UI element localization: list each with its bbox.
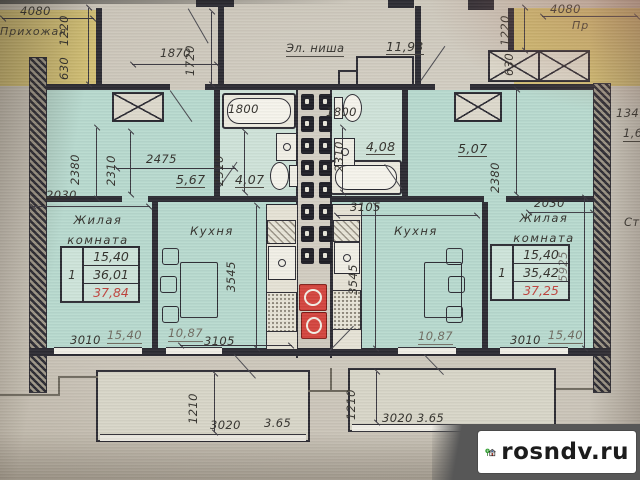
dim-3105-right: 3105 xyxy=(350,201,381,214)
dim-line xyxy=(130,132,131,194)
left-balcony-glazing xyxy=(100,434,306,442)
room-label-kitchen-left: Кухня xyxy=(182,221,242,241)
stove-area-right xyxy=(332,290,361,330)
corridor-wall-left xyxy=(218,6,224,86)
watermark: rosndv.ru xyxy=(478,431,636,473)
area-kitchen-right: 10,87 xyxy=(418,330,453,345)
neighbor-hall-left-fill xyxy=(0,10,96,86)
riser xyxy=(319,182,332,198)
dim-3545-left: 3545 xyxy=(225,261,238,292)
electrical-niche-outline xyxy=(356,56,414,88)
riser-shaft-grid xyxy=(301,94,332,264)
exterior-wall-right xyxy=(594,84,610,392)
door-swing xyxy=(420,46,445,81)
vent-shaft-right xyxy=(454,92,502,122)
dim-2380-left: 2380 xyxy=(69,154,82,185)
dim-2310-left-bath: 2310 xyxy=(213,155,226,186)
chair xyxy=(446,306,463,323)
riser xyxy=(319,226,332,242)
dim-2310-left-hall: 2310 xyxy=(105,155,118,186)
dim-line xyxy=(336,215,478,216)
dim-1540-left: 15,40 xyxy=(107,329,142,344)
room-number-right: 1 xyxy=(492,246,514,299)
dim-3010-right: 3010 xyxy=(510,334,541,347)
dim-line xyxy=(516,90,517,194)
left-balcony xyxy=(96,370,310,442)
area-value: 35,42 xyxy=(514,264,568,282)
toilet-bowl xyxy=(270,162,289,190)
riser xyxy=(301,160,314,176)
dim-line xyxy=(256,206,257,348)
area-value-total: 37,25 xyxy=(514,282,568,299)
riser xyxy=(301,182,314,198)
dim-630-right: 630 xyxy=(503,53,516,76)
photo-top-edge xyxy=(0,0,640,4)
riser xyxy=(319,138,332,154)
window-right-kitchen xyxy=(398,347,456,355)
gas-stove-symbol xyxy=(299,284,327,311)
dim-3020-left-balcony: 3020 xyxy=(210,419,241,432)
room-label-hall-right: Пр xyxy=(572,19,589,32)
chair xyxy=(162,248,179,265)
riser xyxy=(301,138,314,154)
facade-line xyxy=(58,378,60,396)
dim-2475: 2475 xyxy=(146,153,177,166)
dim-1210-left-balcony: 1210 xyxy=(187,393,200,424)
toilet-tank xyxy=(289,165,298,187)
facade-line xyxy=(58,376,98,378)
room-label-living-right: Жилая комната xyxy=(496,208,592,248)
dim-630-left: 630 xyxy=(58,57,71,80)
top-wall-segment xyxy=(470,84,602,90)
toilet-left xyxy=(270,162,298,194)
dim-3010-left: 3010 xyxy=(70,334,101,347)
chair xyxy=(162,306,179,323)
riser xyxy=(301,226,314,242)
dim-3105-left: 3105 xyxy=(204,335,235,348)
dim-line xyxy=(132,64,218,65)
label-right-edge: Ст xyxy=(624,216,640,229)
dim-line xyxy=(96,128,97,198)
vent-shaft-left xyxy=(112,92,164,122)
dim-right-edge: 134 xyxy=(616,107,639,120)
neighbor-hall-wall-left xyxy=(96,8,102,86)
area-right-edge: 1,6 xyxy=(623,127,640,142)
electrical-niche-outline xyxy=(338,70,358,88)
room-label-electrical-niche: Эл. ниша xyxy=(286,42,344,57)
appliance-left xyxy=(267,220,296,244)
dim-2310-right-bath: 2310 xyxy=(333,141,346,172)
dim-line xyxy=(524,8,525,50)
living-kitchen-divider-right xyxy=(482,202,488,352)
area-table-right: 1 15,40 35,42 37,25 xyxy=(490,244,570,301)
area-hall-right: 5,07 xyxy=(458,142,487,157)
dim-line xyxy=(542,16,638,17)
facade-line xyxy=(0,394,60,396)
dim-line xyxy=(32,206,150,207)
dim-line xyxy=(211,12,212,84)
chair xyxy=(448,276,465,293)
area-value: 36,01 xyxy=(84,266,138,284)
area-left-balcony: 3.65 xyxy=(264,417,291,430)
riser xyxy=(301,94,314,110)
window-left-room xyxy=(54,347,142,355)
riser xyxy=(301,116,314,132)
window-left-kitchen xyxy=(166,347,222,355)
bathroom-wall-right xyxy=(402,90,408,196)
dining-table-left xyxy=(180,262,218,318)
stove-area-left xyxy=(266,292,297,332)
dim-line xyxy=(180,345,292,346)
chair xyxy=(160,276,177,293)
area-value: 15,40 xyxy=(84,248,138,266)
riser xyxy=(319,204,332,220)
riser xyxy=(319,160,332,176)
dim-line xyxy=(88,8,89,84)
dim-1210-right-balcony: 1210 xyxy=(345,389,358,420)
living-kitchen-divider-left xyxy=(152,202,158,352)
right-balcony xyxy=(348,368,556,432)
area-value-total: 37,84 xyxy=(84,284,138,301)
riser xyxy=(301,248,314,264)
kitchen-sink-left xyxy=(268,246,296,280)
dim-1800-right-tub: 1800 xyxy=(326,106,357,119)
area-kitchen-left: 10,87 xyxy=(168,327,203,342)
dim-2380-right: 2380 xyxy=(489,162,502,193)
hall-room-wall-left xyxy=(148,196,296,202)
area-rows: 15,40 36,01 37,84 xyxy=(84,248,138,301)
riser xyxy=(301,204,314,220)
dim-line xyxy=(2,18,94,19)
room-label-living-left: Жилая комната xyxy=(50,210,146,250)
dim-4080-top-right: 4080 xyxy=(550,3,581,16)
area-table-left: 1 15,40 36,01 37,84 xyxy=(60,246,140,303)
area-electrical-niche: 11,93 xyxy=(386,40,424,55)
vent-shaft-cell xyxy=(538,52,588,80)
dim-3545-right: 3545 xyxy=(347,264,360,295)
area-value: 15,40 xyxy=(514,246,568,264)
exterior-wall-left xyxy=(30,58,46,392)
area-bath-left: 4,07 xyxy=(235,173,264,188)
door-swing xyxy=(187,8,208,43)
dim-4080-top-left: 4080 xyxy=(20,5,51,18)
dim-1800-left-tub: 1800 xyxy=(228,103,259,116)
dim-1720: 1720 xyxy=(184,45,197,76)
rosndv-logo-icon xyxy=(485,435,496,469)
appliance-right xyxy=(333,220,360,242)
facade-line xyxy=(330,368,332,392)
dim-2030-left: 2030 xyxy=(46,189,77,202)
gas-stove-symbol xyxy=(301,312,327,339)
chair xyxy=(446,248,463,265)
watermark-text: rosndv.ru xyxy=(501,439,629,465)
sink-left-bath xyxy=(276,133,297,161)
area-rows: 15,40 35,42 37,25 xyxy=(514,246,568,299)
area-bath-right: 4,08 xyxy=(366,140,395,155)
area-hall-left: 5,67 xyxy=(176,173,205,188)
riser xyxy=(319,248,332,264)
dim-line xyxy=(375,206,376,348)
room-number-left: 1 xyxy=(62,248,84,301)
floor-plan-photo: 4080 Прихожая 1220 630 1870 1720 Эл. ниш… xyxy=(0,0,640,480)
window-right-room xyxy=(500,347,568,355)
room-label-kitchen-right: Кухня xyxy=(386,221,446,241)
dim-1220-right: 1220 xyxy=(499,15,512,46)
dim-1540-right: 15,40 xyxy=(548,329,583,344)
dim-1220-left: 1220 xyxy=(58,15,71,46)
dim-line xyxy=(376,372,377,422)
